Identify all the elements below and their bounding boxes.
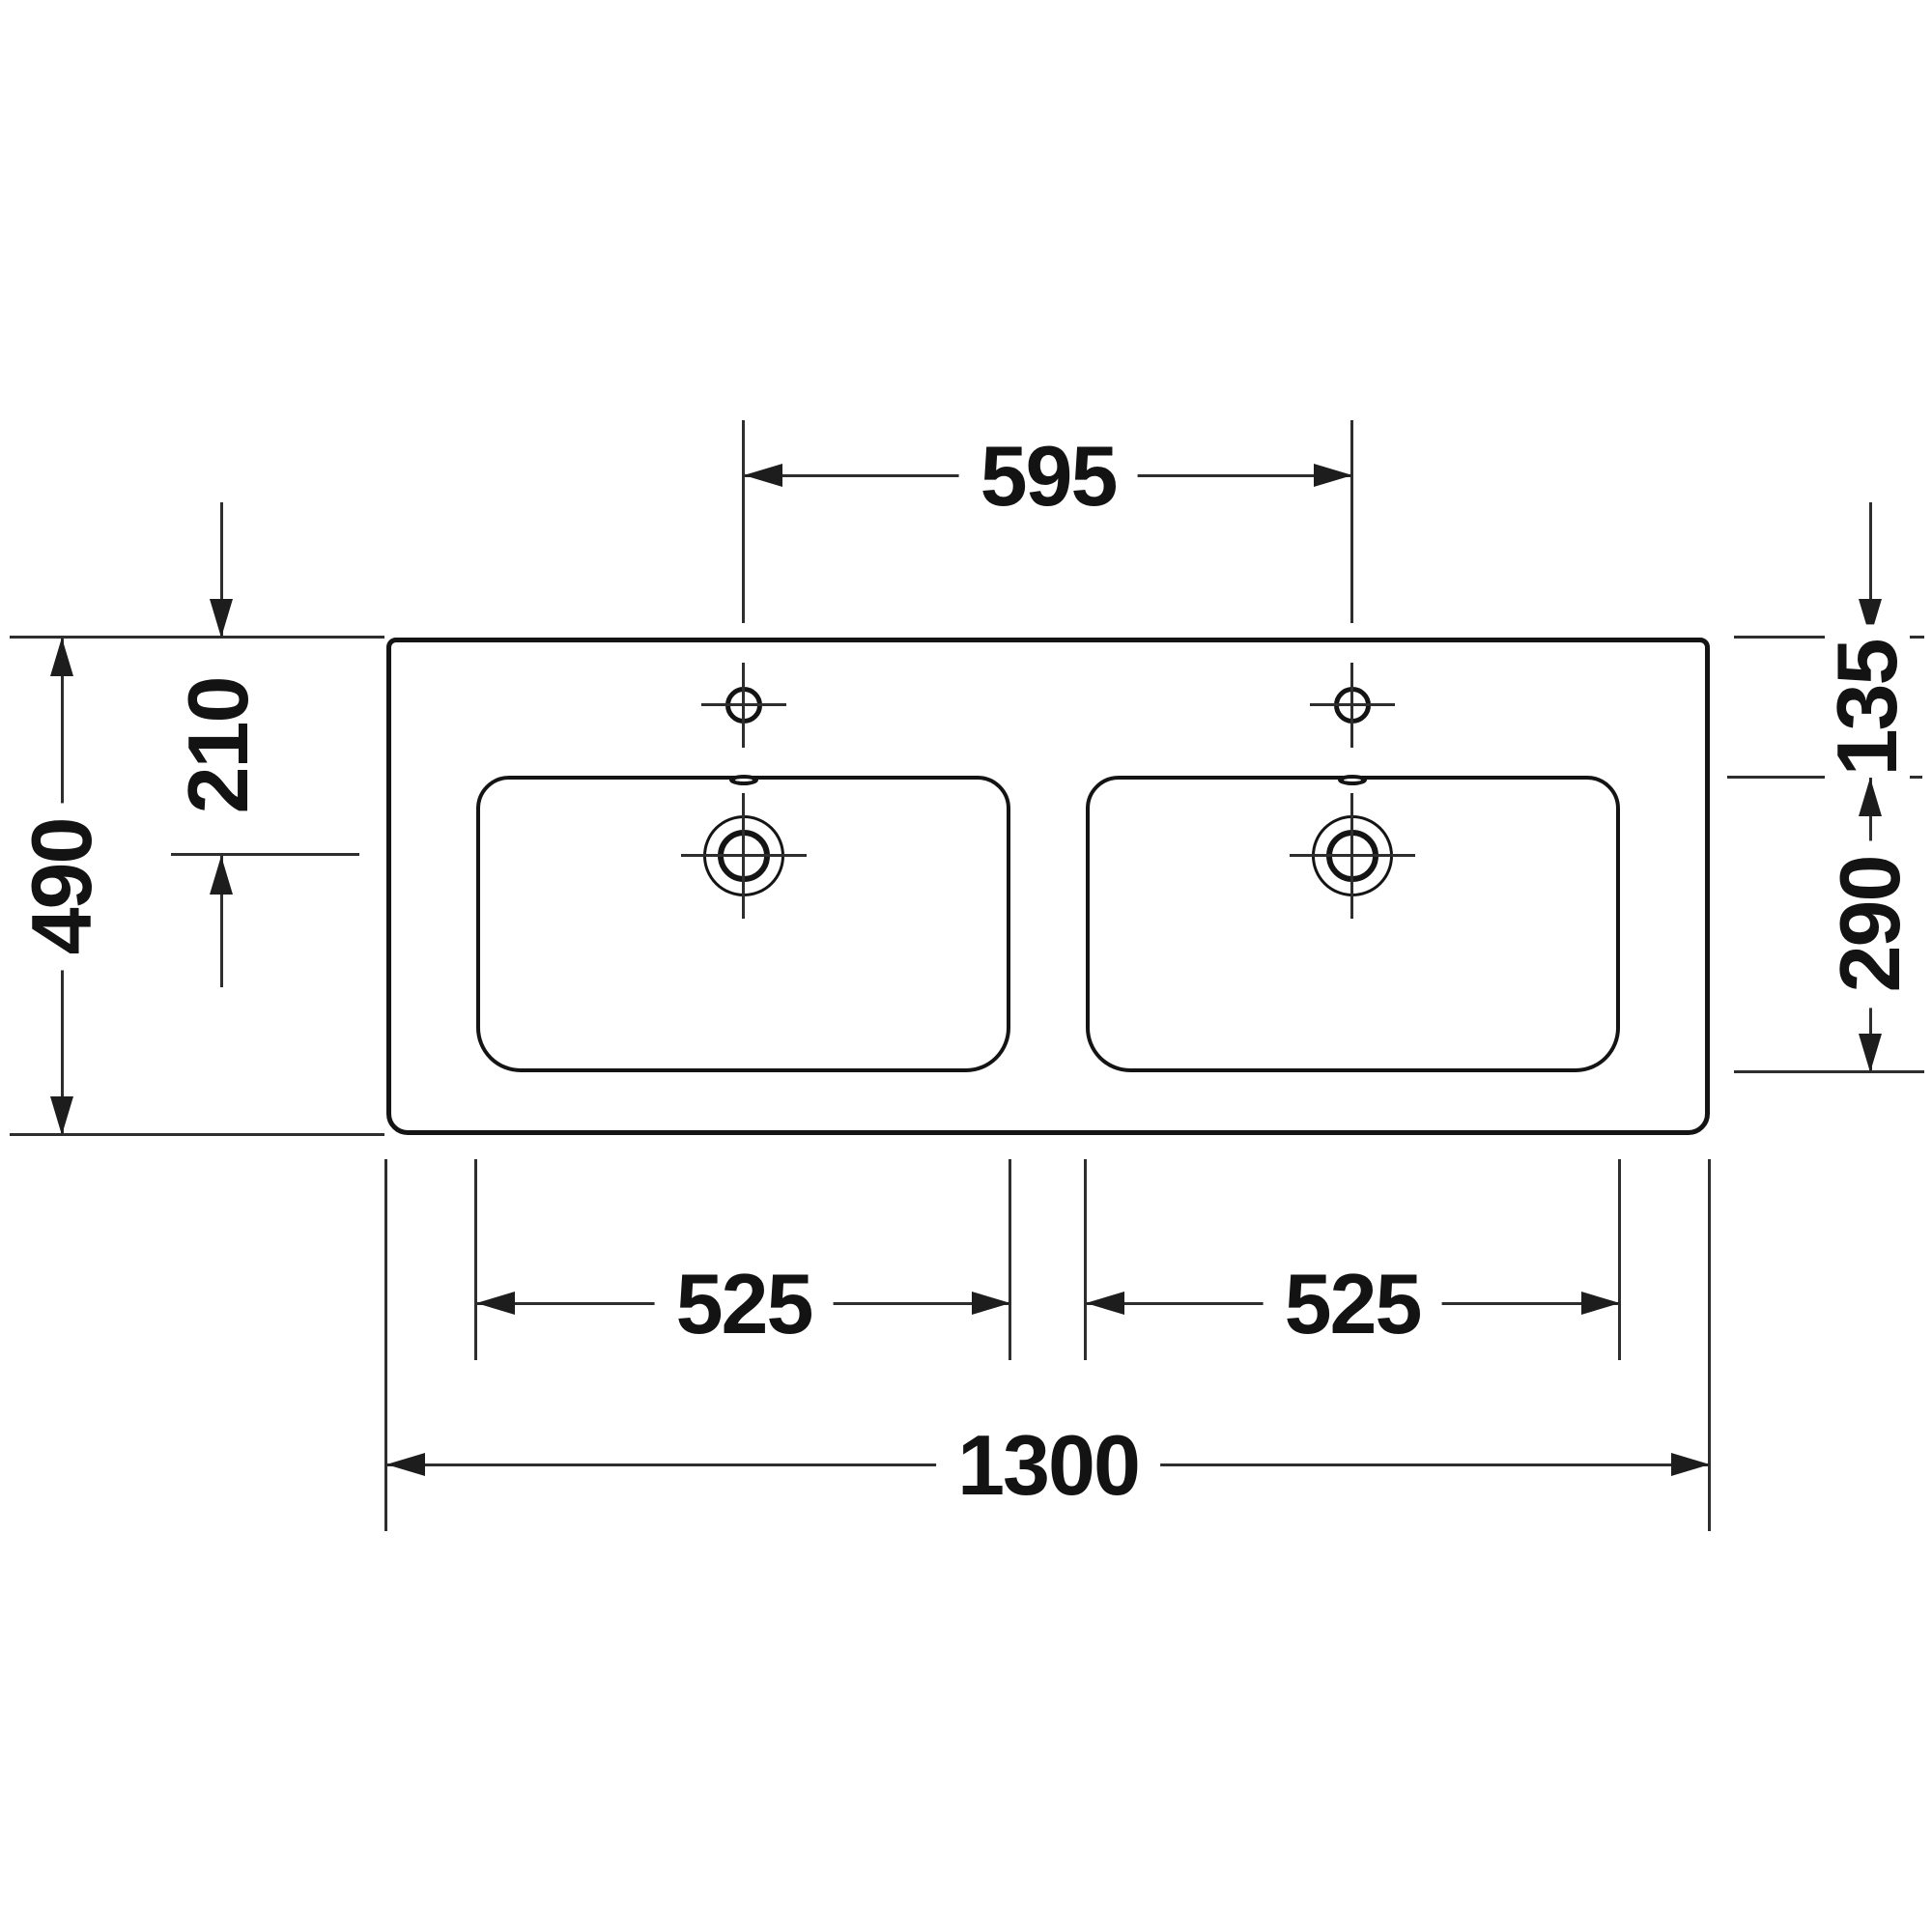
dim-290-arrow-down-icon <box>1859 1034 1882 1072</box>
dim-135-label: 135 <box>1825 625 1910 792</box>
dim-525r-extension-right <box>1618 1159 1621 1360</box>
dim-525l-extension-left <box>474 1159 477 1360</box>
dim-525r-arrow-right-icon <box>1581 1292 1620 1315</box>
technical-drawing-canvas: 595 490 210 135 290 525 525 1300 <box>0 0 1932 1932</box>
dim-525l-extension-right <box>1009 1159 1011 1360</box>
dim-290-extension-bottom <box>1734 1070 1924 1073</box>
overflow-slot-right-slit <box>1344 779 1361 781</box>
dim-595-arrow-right-icon <box>1314 464 1352 487</box>
dim-525r-arrow-left-icon <box>1086 1292 1124 1315</box>
overflow-slot-left-slit <box>735 779 753 781</box>
dim-210-label: 210 <box>176 663 261 830</box>
drain-right-crosshair-v <box>1350 793 1353 919</box>
dim-290-label: 290 <box>1828 841 1913 1009</box>
dim-1300-arrow-left-icon <box>386 1453 425 1476</box>
dim-290-arrow-up-icon <box>1859 778 1882 816</box>
dim-525r-label: 525 <box>1264 1262 1442 1347</box>
faucet-left-crosshair-v <box>742 663 745 748</box>
dim-1300-arrow-right-icon <box>1671 1453 1710 1476</box>
dim-490-label: 490 <box>19 804 104 971</box>
dim-210-arrow-up-icon <box>210 856 233 895</box>
dim-595-extension-left <box>742 420 745 623</box>
dim-1300-label: 1300 <box>936 1423 1160 1508</box>
dim-210-arrow-down-icon <box>210 599 233 638</box>
dim-210-drain-tick <box>171 853 359 856</box>
dim-595-label: 595 <box>959 434 1138 519</box>
dim-525l-arrow-right-icon <box>972 1292 1010 1315</box>
dim-525r-extension-left <box>1084 1159 1087 1360</box>
faucet-right-crosshair-v <box>1350 663 1353 748</box>
dim-525l-arrow-left-icon <box>476 1292 515 1315</box>
dim-525l-label: 525 <box>655 1262 834 1347</box>
dim-595-extension-right <box>1350 420 1353 623</box>
dim-490-arrow-up-icon <box>50 638 73 676</box>
drain-left-crosshair-v <box>742 793 745 919</box>
dim-595-arrow-left-icon <box>744 464 782 487</box>
dim-490-arrow-down-icon <box>50 1096 73 1135</box>
